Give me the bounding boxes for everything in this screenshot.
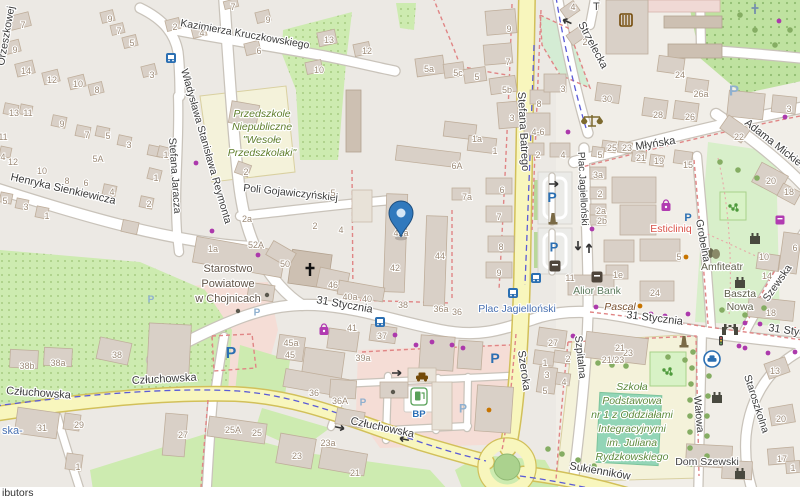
place-label: Pascal bbox=[604, 301, 636, 313]
house-number: 20 bbox=[766, 176, 776, 186]
building bbox=[640, 239, 680, 261]
house-number: 31 bbox=[37, 423, 47, 433]
tree-icon bbox=[687, 413, 693, 419]
place-label: nr 1 z Oddziałami bbox=[591, 409, 673, 421]
house-number: 15 bbox=[683, 160, 693, 170]
place-label: Przedszkolaki" bbox=[228, 147, 298, 159]
house-number: 17 bbox=[777, 454, 787, 464]
house-number: 5 bbox=[330, 188, 335, 198]
house-number: 13 bbox=[9, 108, 19, 118]
building bbox=[648, 0, 720, 12]
house-number: 14 bbox=[21, 66, 31, 76]
atm-icon bbox=[592, 272, 603, 283]
house-number: 40a bbox=[342, 292, 357, 302]
place-label: Rydzkowskiego bbox=[596, 451, 669, 463]
house-number: 14 bbox=[762, 271, 772, 281]
house-number: 12 bbox=[362, 46, 372, 56]
shop-dot-icon bbox=[590, 227, 595, 232]
tree-icon bbox=[735, 167, 741, 173]
taxi-icon bbox=[704, 351, 720, 367]
place-label: Podstawowa bbox=[602, 395, 662, 407]
place-label: Amfiteatr bbox=[701, 261, 744, 273]
building bbox=[664, 16, 722, 28]
poi-dot-icon bbox=[265, 293, 269, 297]
building bbox=[668, 44, 722, 58]
house-number: 50 bbox=[280, 259, 290, 269]
svg-text:P: P bbox=[148, 295, 155, 306]
building bbox=[432, 382, 452, 430]
house-number: 12 bbox=[8, 157, 18, 167]
place-label: Przedszkole bbox=[233, 108, 290, 120]
house-number: 36 bbox=[309, 388, 319, 398]
house-number: 7 bbox=[116, 26, 121, 36]
house-number: 38a bbox=[50, 358, 65, 368]
parking-icon: P bbox=[550, 240, 559, 255]
house-number: 21 bbox=[615, 343, 625, 353]
house-number: 38 bbox=[398, 300, 408, 310]
tree-icon bbox=[689, 365, 695, 371]
house-number: 1a bbox=[208, 244, 218, 254]
house-number: 5a bbox=[424, 64, 434, 74]
house-number: 37 bbox=[377, 331, 387, 341]
house-number: 3 bbox=[509, 113, 514, 123]
shop-dot-icon bbox=[414, 343, 419, 348]
house-number: 36 bbox=[452, 307, 462, 317]
place-label: Nowa bbox=[727, 301, 754, 313]
street-label: T bbox=[593, 1, 600, 13]
place-label: Plac Jagielloński bbox=[478, 303, 556, 315]
building bbox=[352, 190, 372, 222]
house-number: 9 bbox=[12, 45, 17, 55]
house-number: 4 bbox=[561, 377, 566, 387]
house-number: 3 bbox=[23, 202, 28, 212]
tree-icon bbox=[690, 349, 696, 355]
area-hedge bbox=[534, 180, 538, 220]
house-number: 24 bbox=[650, 288, 660, 298]
house-number: 11 bbox=[0, 132, 8, 142]
house-number: 3 bbox=[786, 104, 791, 114]
house-number: 24 bbox=[675, 70, 685, 80]
fuel-icon bbox=[411, 388, 427, 405]
building bbox=[485, 9, 517, 36]
place-label: "Wesołe bbox=[243, 134, 282, 146]
house-number: 22 bbox=[734, 132, 744, 142]
house-number: 1a bbox=[472, 134, 482, 144]
food-dot-icon bbox=[638, 304, 643, 309]
tree-icon bbox=[772, 42, 778, 48]
bag-icon bbox=[320, 324, 329, 335]
shop-dot-icon bbox=[743, 321, 748, 326]
tree-icon bbox=[704, 433, 710, 439]
tree-icon bbox=[687, 429, 693, 435]
house-number: 7 bbox=[84, 130, 89, 140]
poi-dot-icon bbox=[236, 309, 240, 313]
house-number: 21 bbox=[636, 153, 646, 163]
house-number: 2 bbox=[582, 37, 587, 47]
house-number: 1 bbox=[163, 150, 168, 160]
house-number: 2 bbox=[565, 354, 570, 364]
tree-icon bbox=[545, 446, 551, 452]
house-number: 9 bbox=[107, 14, 112, 24]
house-number: 25A bbox=[225, 425, 241, 435]
shop-dot-icon bbox=[566, 130, 571, 135]
house-number: 21/23 bbox=[602, 355, 625, 365]
tree-icon bbox=[706, 373, 712, 379]
house-number: 41 bbox=[347, 323, 357, 333]
building bbox=[346, 90, 361, 152]
shop-dot-icon bbox=[743, 346, 748, 351]
house-number: 46 bbox=[328, 280, 338, 290]
shop-dot-icon bbox=[194, 161, 199, 166]
house-number: 40 bbox=[362, 294, 372, 304]
house-number: 25 bbox=[252, 428, 262, 438]
parking-icon: P bbox=[547, 189, 556, 205]
house-number: 28 bbox=[653, 110, 663, 120]
house-number: 26a bbox=[693, 89, 708, 99]
house-number: 45 bbox=[285, 350, 295, 360]
street-label: Orzeszkowej bbox=[0, 5, 17, 66]
tree-icon bbox=[787, 27, 793, 33]
parking-light-icon: P bbox=[729, 82, 739, 99]
house-number: 9 bbox=[59, 119, 64, 129]
building bbox=[604, 240, 634, 262]
svg-text:P: P bbox=[226, 345, 237, 362]
house-number: 3 bbox=[126, 140, 131, 150]
house-number: 45a bbox=[283, 338, 298, 348]
house-number: 1 bbox=[542, 358, 547, 368]
building bbox=[771, 95, 797, 114]
house-number: 7 bbox=[496, 212, 501, 222]
tree-icon bbox=[687, 445, 693, 451]
svg-text:P: P bbox=[459, 401, 467, 415]
house-number: 23 bbox=[622, 143, 632, 153]
house-number: 5 bbox=[2, 196, 7, 206]
bus-icon bbox=[531, 273, 541, 283]
tree-icon bbox=[752, 27, 758, 33]
house-number: 1 bbox=[75, 462, 80, 472]
house-number: 29 bbox=[74, 420, 84, 430]
place-label: Niepubliczne bbox=[232, 121, 292, 133]
parking-light-icon: P bbox=[254, 308, 261, 319]
house-number: 7 bbox=[20, 20, 25, 30]
atm-icon bbox=[550, 261, 561, 272]
parking-light-icon: P bbox=[148, 295, 155, 306]
shop-dot-icon bbox=[393, 333, 398, 338]
house-number: 27 bbox=[178, 430, 188, 440]
shop-dot-icon bbox=[686, 312, 691, 317]
house-number: 44 bbox=[435, 251, 445, 261]
shop-dot-icon bbox=[594, 305, 599, 310]
house-number: 26 bbox=[685, 112, 695, 122]
house-number: 18 bbox=[784, 187, 794, 197]
house-number: 42 bbox=[390, 263, 400, 273]
house-number: 36a bbox=[433, 304, 448, 314]
house-number: 8 bbox=[498, 242, 503, 252]
house-number: 20 bbox=[776, 414, 786, 424]
tree-icon bbox=[742, 312, 748, 318]
magenta-box-icon bbox=[776, 216, 785, 225]
house-number: 3 bbox=[149, 70, 154, 80]
house-number: 8 bbox=[94, 85, 99, 95]
house-number: 6 bbox=[83, 178, 88, 188]
shop-dot-icon bbox=[777, 19, 782, 24]
tree-icon bbox=[717, 159, 723, 165]
house-number: 5b bbox=[502, 85, 512, 95]
house-number: 13 bbox=[770, 366, 780, 376]
bus-icon bbox=[166, 53, 176, 63]
tree-icon bbox=[559, 451, 565, 457]
house-number: 1 bbox=[44, 211, 49, 221]
food-dot-icon bbox=[684, 255, 689, 260]
shop-dot-icon bbox=[783, 115, 788, 120]
house-number: 1 bbox=[492, 146, 497, 156]
house-number: 2 bbox=[243, 167, 248, 177]
building bbox=[474, 385, 513, 433]
parking-light-icon: P bbox=[360, 398, 367, 409]
poi-dot-icon bbox=[391, 390, 395, 394]
house-number: 5 bbox=[474, 72, 479, 82]
svg-text:P: P bbox=[550, 240, 559, 255]
house-number: 4 bbox=[338, 225, 343, 235]
house-number: 11 bbox=[565, 273, 574, 283]
map-app: PPPPPPPPPP Kazimierza KruczkowskiegoOrze… bbox=[0, 0, 800, 500]
tree-icon bbox=[665, 354, 671, 360]
tree-icon bbox=[688, 381, 694, 387]
house-number: 23a bbox=[320, 438, 335, 448]
house-number: 5 bbox=[597, 150, 602, 160]
house-number: 6A bbox=[451, 161, 462, 171]
parking-icon: P bbox=[490, 350, 499, 366]
house-number: 4 bbox=[560, 150, 565, 160]
house-number: 9 bbox=[496, 268, 501, 278]
place-label: Szkoła bbox=[616, 381, 648, 393]
house-number: 5 bbox=[676, 252, 681, 262]
house-number: 6 bbox=[499, 185, 504, 195]
house-number: 4 bbox=[570, 2, 575, 12]
house-number: 4 bbox=[199, 28, 204, 38]
place-label: Baszta bbox=[724, 288, 756, 300]
traffic-icon bbox=[719, 336, 723, 346]
house-number: 10 bbox=[314, 65, 324, 75]
attribution-text: ibutors bbox=[2, 487, 34, 499]
house-number: 2 bbox=[535, 150, 540, 160]
svg-text:P: P bbox=[360, 398, 367, 409]
tree-icon bbox=[705, 393, 711, 399]
house-number: 6 bbox=[256, 46, 261, 56]
tree-icon bbox=[595, 360, 601, 366]
place-label: w Chojnicach bbox=[194, 293, 260, 305]
house-number: 3 bbox=[544, 370, 549, 380]
building bbox=[612, 177, 656, 203]
house-number: 8 bbox=[536, 99, 541, 109]
bus-icon bbox=[508, 288, 518, 298]
tree-icon bbox=[682, 357, 688, 363]
house-number: 2a bbox=[596, 206, 606, 216]
house-number: 30 bbox=[602, 94, 612, 104]
house-number: 12 bbox=[47, 75, 57, 85]
area-dotted_green bbox=[396, 3, 416, 30]
house-number: 18 bbox=[766, 308, 776, 318]
shop-dot-icon bbox=[737, 344, 742, 349]
house-number: 6 bbox=[792, 243, 797, 253]
tree-icon bbox=[754, 175, 760, 181]
place-label: BP bbox=[412, 409, 426, 420]
house-number: 5A bbox=[92, 154, 103, 164]
house-number: 10 bbox=[37, 166, 47, 176]
house-number: 4 bbox=[109, 187, 114, 197]
building bbox=[147, 323, 192, 379]
house-number: 1 bbox=[153, 173, 158, 183]
house-number: 9 bbox=[265, 15, 270, 25]
house-number: 2b bbox=[597, 216, 607, 226]
house-number: 10 bbox=[73, 79, 83, 89]
house-number: 5 bbox=[129, 38, 134, 48]
house-number: 2 bbox=[312, 221, 317, 231]
house-number: 19 bbox=[654, 156, 664, 166]
house-number: 7a bbox=[462, 192, 472, 202]
bus-icon bbox=[375, 317, 385, 327]
house-number: 21 bbox=[350, 468, 360, 478]
boundary-red bbox=[352, 170, 353, 300]
svg-text:P: P bbox=[729, 82, 739, 99]
building bbox=[423, 216, 447, 307]
house-number: 39a bbox=[355, 353, 370, 363]
shop-dot-icon bbox=[766, 351, 771, 356]
place-label: Integracyjnymi bbox=[598, 423, 666, 435]
svg-text:P: P bbox=[547, 189, 556, 205]
tree-icon bbox=[737, 12, 743, 18]
house-number: 2 bbox=[172, 22, 177, 32]
house-number: 38b bbox=[19, 361, 34, 371]
house-number: 52A bbox=[248, 240, 264, 250]
area-dotted_green bbox=[0, 250, 232, 404]
area-hedge bbox=[534, 232, 538, 268]
building bbox=[380, 382, 408, 398]
building bbox=[457, 340, 483, 370]
house-number: 1e bbox=[613, 270, 623, 280]
house-number: 27 bbox=[548, 338, 558, 348]
house-number: 3a bbox=[593, 170, 603, 180]
building bbox=[606, 0, 648, 54]
house-number: 25 bbox=[607, 143, 617, 153]
street-label: Poli Gojawiczyńskiej bbox=[243, 182, 339, 204]
house-number: 5 bbox=[105, 131, 110, 141]
house-number: 2 bbox=[597, 189, 602, 199]
place-label: Dom Szewski bbox=[675, 456, 739, 468]
house-number: 7 bbox=[505, 57, 510, 67]
parking-icon: P bbox=[226, 345, 237, 362]
shop-dot-icon bbox=[210, 229, 215, 234]
building bbox=[121, 219, 139, 234]
building bbox=[419, 335, 455, 371]
shop-dot-icon bbox=[758, 322, 763, 327]
house-number: 38 bbox=[112, 350, 122, 360]
house-number: 13 bbox=[324, 35, 334, 45]
house-number: 5 bbox=[542, 386, 547, 396]
house-number: 1 bbox=[790, 463, 795, 473]
svg-text:P: P bbox=[490, 350, 499, 366]
place-label: Esticliniq bbox=[650, 223, 692, 235]
food-dot-icon bbox=[487, 408, 492, 413]
map-canvas[interactable]: PPPPPPPPPP Kazimierza KruczkowskiegoOrze… bbox=[0, 0, 800, 487]
house-number: 4-6 bbox=[531, 127, 544, 137]
house-number: 2a bbox=[242, 214, 252, 224]
place-label: im. Juliana bbox=[607, 437, 657, 449]
house-number: 3 bbox=[560, 84, 565, 94]
house-number: 36A bbox=[332, 396, 348, 406]
place-label: Starostwo bbox=[204, 263, 253, 275]
house-number: 2 bbox=[146, 199, 151, 209]
place-label: Powiatowe bbox=[201, 278, 254, 290]
house-number: 7 bbox=[230, 2, 235, 12]
house-number: 23 bbox=[292, 451, 302, 461]
area-playground bbox=[720, 192, 746, 220]
house-number: 10 bbox=[759, 252, 769, 262]
tree-icon bbox=[719, 307, 725, 313]
shop-dot-icon bbox=[793, 350, 798, 355]
attribution: ibutors bbox=[0, 487, 800, 500]
shop-dot-icon bbox=[430, 340, 435, 345]
street-label: ska- bbox=[2, 425, 23, 437]
house-number: 11 bbox=[23, 108, 32, 118]
house-number: 5c bbox=[453, 68, 463, 78]
house-number: 9 bbox=[506, 24, 511, 34]
svg-text:P: P bbox=[254, 308, 261, 319]
house-number: 4 bbox=[0, 152, 5, 162]
shop-dot-icon bbox=[461, 346, 466, 351]
shop-dot-icon bbox=[450, 343, 455, 348]
place-label: Alior Bank bbox=[573, 285, 622, 297]
roundabout bbox=[494, 454, 520, 480]
shop-dot-icon bbox=[256, 253, 261, 258]
house-number: 8 bbox=[64, 176, 69, 186]
parking-light-icon: P bbox=[459, 401, 467, 415]
